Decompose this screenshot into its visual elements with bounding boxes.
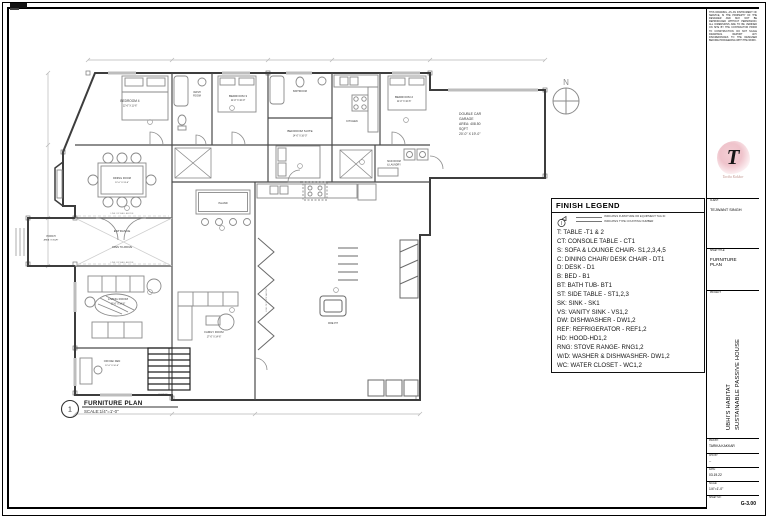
room-dim: 12'-6" X 11'-6" [123, 106, 138, 108]
room-label: BEDROOM 2 [395, 95, 413, 99]
legend-title: FINISH LEGEND [552, 199, 704, 213]
legend-item: HD: HOOD-HD1,2 [557, 335, 699, 344]
legend-item: ST: SIDE TABLE - ST1,2,3 [557, 291, 699, 300]
room-label: BEDROOM SUITE [287, 129, 312, 133]
sheet-title-label: SHEET TITLE: [710, 250, 756, 252]
drawing-sheet: { "legend": { "title": "FINISH LEGEND", … [0, 0, 768, 518]
leader-line [576, 221, 602, 222]
project-name: UBHI'S HABITAT SUSTAINABLE PASSIVE HOUSE [710, 298, 756, 430]
legend-item: WC: WATER CLOSET - WC1,2 [557, 362, 699, 371]
legend-item: CT: CONSOLE TABLE - CT1 [557, 238, 699, 247]
room-label: & LAUNDRY [387, 164, 401, 167]
open-to-above-marks [75, 216, 172, 266]
client-label: CLIENT: [710, 200, 756, 202]
logo-watercolor-blob: T [717, 141, 750, 174]
sheet-title-section: SHEET TITLE: FURNITURE PLAN [707, 248, 759, 290]
stairs [148, 348, 190, 390]
date-field: DATE: 03.19.22 [707, 467, 759, 481]
leader-line [576, 217, 602, 218]
legend-item: W/D: WASHER & DISHWASHER- DW1,2 [557, 353, 699, 362]
drawn-by-value: TARIKA KAKKAR [709, 444, 757, 448]
legend-item: BT: BATH TUB- BT1 [557, 282, 699, 291]
title-block: THIS DRAWING, AS AN INSTRUMENT OF SERVIC… [706, 9, 759, 509]
client-name: TEJWANT SINGH [710, 207, 756, 212]
annotation: LINE OF ROOF ABOVE [265, 288, 268, 312]
room-label: FAMILY ROOM [204, 330, 224, 334]
legend-item: S: SOFA & LOUNGE CHAIR- S1,2,3,4,5 [557, 247, 699, 256]
legend-note-lines: INDICATES FURNITURE OR EQUIPMENT TAG ID … [576, 215, 665, 224]
room-label: DINING ROOM [113, 176, 131, 180]
project-line-2: SUSTAINABLE PASSIVE HOUSE [735, 298, 741, 430]
room-dim: 17'-0" X 14'-6" [207, 337, 222, 339]
room-label: ISLAND [218, 201, 227, 205]
room-labels: BEDROOM 4 12'-6" X 11'-6" WASH ROOM BEDR… [44, 90, 414, 396]
sheet-number-field: SHEET NO: G-3.00 [707, 495, 759, 509]
room-dim: AREA: 70 SQFT [44, 239, 59, 242]
designer-logo: T Tarika Kakkar [707, 141, 759, 179]
legend-item: T: TABLE -T1 & 2 [557, 229, 699, 238]
garage-note: DOUBLE CAR GARAGE AREA: 408.50 SQFT 20'-… [459, 112, 482, 136]
legend-item: DW: DISHWASHER - DW1,2 [557, 317, 699, 326]
checked-by-field: CHK BY: -- [707, 453, 759, 467]
room-label: PORCH [46, 235, 55, 238]
drawn-by-field: DWN BY: TARIKA KAKKAR [707, 438, 759, 453]
sheet-number-value: G-3.00 [741, 501, 756, 507]
annotation: LINE OF WALL ABOVE [111, 212, 134, 215]
annotation: LINE OF WALL ABOVE [111, 261, 134, 264]
date-label: DATE: [709, 469, 757, 471]
room-label: FIRE PIT [328, 322, 338, 325]
project-label: PROJECT: [710, 292, 756, 294]
legend-item: B: BED - B1 [557, 273, 699, 282]
checked-by-value: -- [709, 459, 757, 463]
project-line-1: UBHI'S HABITAT [726, 298, 732, 430]
legend-note-text: INDICATES TYPE COUNTING NUMBER [604, 220, 653, 225]
walls-interior [75, 73, 430, 400]
garage-note-line: DOUBLE CAR [459, 112, 482, 116]
date-value: 03.19.22 [709, 473, 757, 477]
room-dim: 12'-0" X 13'-6" [115, 182, 129, 184]
annotation: OPEN TO ABOVE [112, 246, 133, 249]
porch-steps [16, 228, 24, 256]
sheet-number-label: SHEET NO: [709, 497, 757, 499]
patio [258, 238, 418, 396]
room-dim: 11'-0" X 10'-6" [397, 101, 412, 103]
scale-label: SCALE: [709, 483, 757, 485]
checked-by-label: CHK BY: [709, 455, 757, 457]
legend-note: INDICATES FURNITURE OR EQUIPMENT TAG ID … [552, 213, 704, 228]
legend-note-2: INDICATES TYPE COUNTING NUMBER [576, 220, 665, 225]
legend-item: REF: REFRIGERATOR - REF1,2 [557, 326, 699, 335]
room-label: ROOM [193, 95, 201, 98]
room-label: OFFICE/ DEN [104, 359, 121, 363]
project-section: PROJECT: UBHI'S HABITAT SUSTAINABLE PASS… [707, 290, 759, 438]
scale-value: 1/4"=1'-0" [709, 487, 757, 491]
sheet-title: FURNITURE PLAN [710, 257, 742, 268]
garage-note-line: AREA: 408.50 [459, 122, 481, 126]
legend-item: C: DINING CHAIR/ DESK CHAIR - DT1 [557, 256, 699, 265]
room-dim: 11'-0" X 10'-0" [231, 100, 246, 102]
room-label: KITCHEN [346, 119, 358, 123]
room-label: LIVING ROOM [108, 297, 129, 301]
garage-note-line: GARAGE [459, 117, 474, 121]
scale-field: SCALE: 1/4"=1'-0" [707, 481, 759, 495]
room-label: BATHROOM [293, 90, 307, 93]
drawn-by-label: DWN BY: [709, 440, 757, 442]
furniture [57, 75, 428, 384]
callout-scale: SCALE:1/4"=1'-0" [84, 409, 119, 414]
room-dim: 12'-6" X 10'-6" [105, 365, 119, 367]
room-label: BEDROOM 3 [229, 94, 247, 98]
room-dim: 14'-0" X 16'-0" [293, 136, 308, 138]
legend-item: D: DESK - D1 [557, 264, 699, 273]
garage-note-line: 20'-0" X 19'-0" [459, 132, 481, 136]
legend-item: VS: VANITY SINK - VS1,2 [557, 309, 699, 318]
furniture-tags [125, 106, 409, 313]
north-label: N [563, 78, 569, 87]
garage-note-line: SQFT [459, 127, 468, 131]
callout-title: FURNITURE PLAN [84, 400, 143, 407]
legend-item: RNG: STOVE RANGE- RNG1,2 [557, 344, 699, 353]
north-arrow-icon: N [553, 78, 579, 114]
room-dim: 13'-6" X 14'-6" [111, 304, 126, 306]
finish-legend: FINISH LEGEND INDICATES FURNITURE OR EQU… [551, 198, 705, 373]
logo-designer-name: Tarika Kakkar [707, 175, 759, 179]
room-label: BEDROOM 4 [120, 99, 139, 103]
legend-items: T: TABLE -T1 & 2 CT: CONSOLE TABLE - CT1… [552, 228, 704, 371]
corner-stamp [10, 3, 27, 10]
callout-number: 1 [68, 407, 72, 414]
tag-symbol-icon [556, 215, 574, 228]
client-section: CLIENT: TEJWANT SINGH [707, 198, 759, 248]
room-label: POWDER [159, 394, 169, 396]
plan-callout: 1 FURNITURE PLAN SCALE:1/4"=1'-0" [62, 400, 179, 418]
logo-monogram: T [717, 144, 750, 170]
closets [175, 148, 372, 178]
disclaimer-note: THIS DRAWING, AS AN INSTRUMENT OF SERVIC… [709, 11, 757, 42]
legend-item: SK: SINK - SK1 [557, 300, 699, 309]
room-label: ENTRANCE [114, 229, 131, 233]
